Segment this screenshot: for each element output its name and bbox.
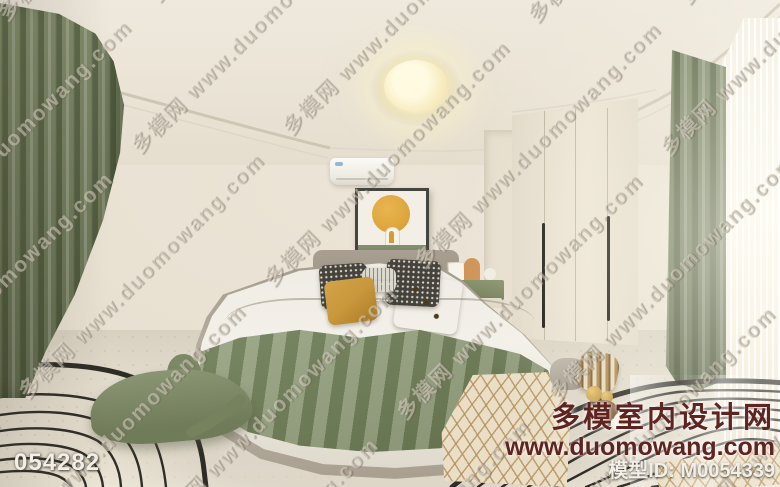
brand-site-name: 多模室内设计网 (505, 403, 775, 434)
brand-site-url: www.duomowang.com (505, 434, 775, 461)
ac-vent (336, 178, 388, 180)
panorama-bedroom-render: 多模网 www.duomowang.com 多模网 www.duomowang.… (0, 0, 780, 487)
curtain-right (666, 50, 726, 390)
model-id-label: 模型ID: M0054339 (505, 461, 775, 483)
photo-id-label: 054282 (14, 449, 100, 477)
pillow-mustard-right (393, 273, 464, 335)
nightstand-vase (484, 268, 496, 280)
ac-logo (335, 162, 343, 166)
pillow-mustard-left (324, 276, 379, 326)
brand-watermark-block: 多模室内设计网 www.duomowang.com 模型ID: M0054339 (505, 403, 775, 483)
ceiling-light (384, 60, 448, 112)
wardrobe-seam (575, 108, 576, 341)
artwork-arch-inner (389, 231, 394, 243)
nightstand-arch-decor (464, 258, 480, 282)
wardrobe-handle (607, 216, 610, 321)
wardrobe (512, 98, 638, 348)
artwork-arch (385, 227, 400, 246)
air-conditioner (330, 158, 394, 185)
wardrobe-handle (542, 223, 545, 328)
